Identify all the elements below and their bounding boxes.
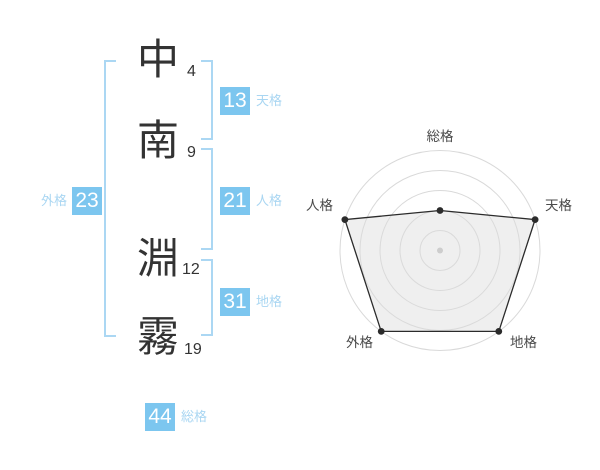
chikaku-value-badge: 31 (220, 288, 250, 316)
name-char-2: 南 (135, 120, 181, 162)
soukaku-value-badge: 44 (145, 403, 175, 431)
jinkaku-label: 人格 (256, 194, 282, 208)
radar-polygon (345, 211, 535, 332)
radar-axis-label: 地格 (510, 335, 538, 350)
name-analysis-result: 中 南 淵 霧 4 9 12 19 13 天格 21 人格 31 地格 23 外… (0, 0, 600, 470)
chikaku-label: 地格 (256, 295, 282, 309)
radar-axis-label: 人格 (306, 198, 333, 213)
chikaku-bracket (201, 259, 213, 336)
radar-point (341, 216, 348, 223)
tenkaku-label: 天格 (256, 94, 282, 108)
radar-chart: 総格天格地格外格人格 (300, 110, 600, 370)
radar-axis-label: 天格 (545, 198, 573, 213)
stroke-count-1: 4 (187, 64, 196, 80)
radar-axis-label: 総格 (427, 129, 454, 144)
jinkaku-value-badge: 21 (220, 187, 250, 215)
tenkaku-bracket (201, 60, 213, 140)
radar-point (495, 328, 502, 335)
stroke-count-4: 19 (184, 342, 202, 358)
name-char-3: 淵 (135, 238, 181, 280)
radar-point (532, 216, 539, 223)
radar-point (378, 328, 385, 335)
radar-point (437, 207, 444, 214)
tenkaku-value-badge: 13 (220, 87, 250, 115)
soukaku-label: 総格 (181, 410, 207, 424)
stroke-count-3: 12 (182, 262, 200, 278)
gaikaku-bracket (104, 60, 116, 337)
stroke-count-2: 9 (187, 145, 196, 161)
radar-axis-label: 外格 (346, 335, 373, 350)
jinkaku-bracket (201, 148, 213, 250)
gaikaku-label: 外格 (30, 194, 67, 208)
name-char-1: 中 (135, 39, 181, 81)
gaikaku-value-badge: 23 (72, 187, 102, 215)
name-char-4: 霧 (135, 316, 181, 358)
